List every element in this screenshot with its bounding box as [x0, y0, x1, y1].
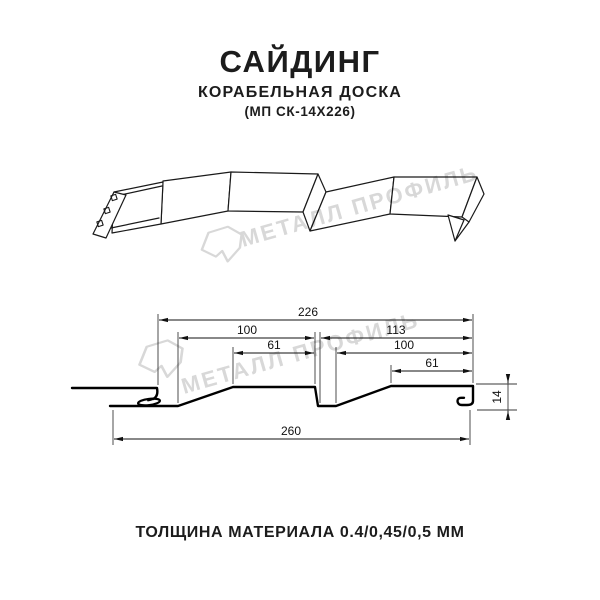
dim-100-right-label: 100: [394, 338, 414, 352]
dim-100-left-label: 100: [237, 323, 257, 337]
extension-lines: [113, 314, 517, 445]
profile-outline: [72, 386, 473, 406]
panel-flat-face-1: [228, 172, 318, 212]
dim-226-label: 226: [298, 305, 318, 319]
material-thickness-label: ТОЛЩИНА МАТЕРИАЛА 0.4/0,45/0,5 ММ: [0, 524, 600, 542]
panel-slope-face-1: [161, 172, 231, 224]
panel-end-hook: [448, 215, 464, 241]
cross-section-diagram: 226 100 113 61 100 61 260 14: [72, 305, 517, 445]
dim-260-label: 260: [281, 424, 301, 438]
dim-61-right-label: 61: [425, 356, 439, 370]
dim-14-label: 14: [490, 390, 504, 404]
product-drawing-page: САЙДИНГ КОРАБЕЛЬНАЯ ДОСКА (МП СК-14Х226): [0, 0, 600, 600]
technical-drawing: 226 100 113 61 100 61 260 14 МЕТАЛЛ ПРОФ…: [0, 0, 600, 600]
